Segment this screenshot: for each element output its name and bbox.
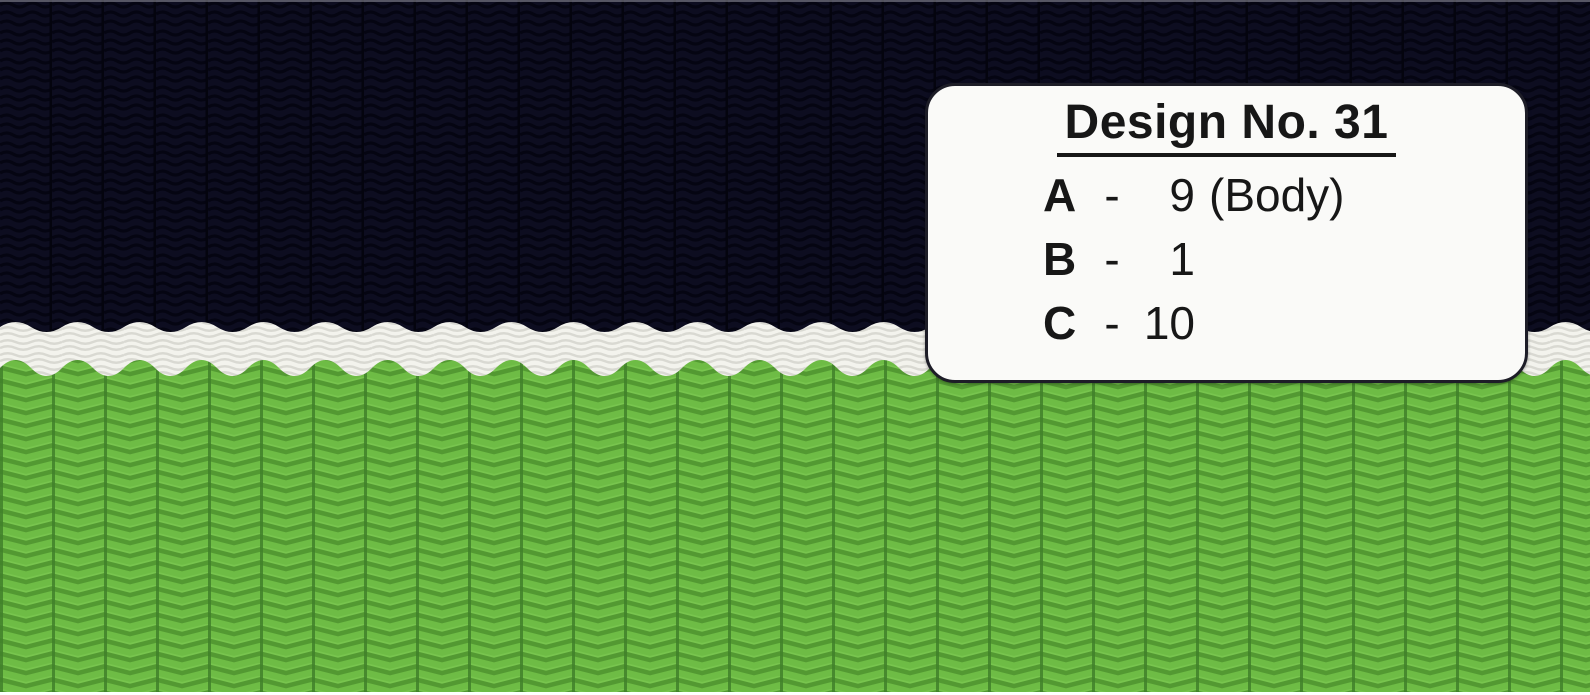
spec-note: (Body) bbox=[1209, 163, 1344, 227]
spec-number: 9 bbox=[1133, 163, 1195, 227]
spec-separator: - bbox=[1091, 163, 1133, 227]
spec-row-c: C - 10 bbox=[1043, 291, 1525, 355]
spec-row-b: B - 1 bbox=[1043, 227, 1525, 291]
design-title: Design No. 31 bbox=[1057, 95, 1397, 157]
spec-letter: A bbox=[1043, 163, 1091, 227]
top-edge-line bbox=[0, 0, 1590, 2]
spec-rows: A - 9 (Body) B - 1 C - 10 bbox=[928, 163, 1525, 355]
design-info-card: Design No. 31 A - 9 (Body) B - 1 C - 10 bbox=[925, 83, 1528, 383]
spec-row-a: A - 9 (Body) bbox=[1043, 163, 1525, 227]
knit-fabric-swatch: Design No. 31 A - 9 (Body) B - 1 C - 10 bbox=[0, 0, 1590, 695]
spec-separator: - bbox=[1091, 227, 1133, 291]
spec-letter: B bbox=[1043, 227, 1091, 291]
spec-number: 1 bbox=[1133, 227, 1195, 291]
spec-number: 10 bbox=[1133, 291, 1195, 355]
spec-letter: C bbox=[1043, 291, 1091, 355]
spec-separator: - bbox=[1091, 291, 1133, 355]
design-title-wrap: Design No. 31 bbox=[928, 95, 1525, 157]
green-fabric-region bbox=[0, 360, 1590, 695]
